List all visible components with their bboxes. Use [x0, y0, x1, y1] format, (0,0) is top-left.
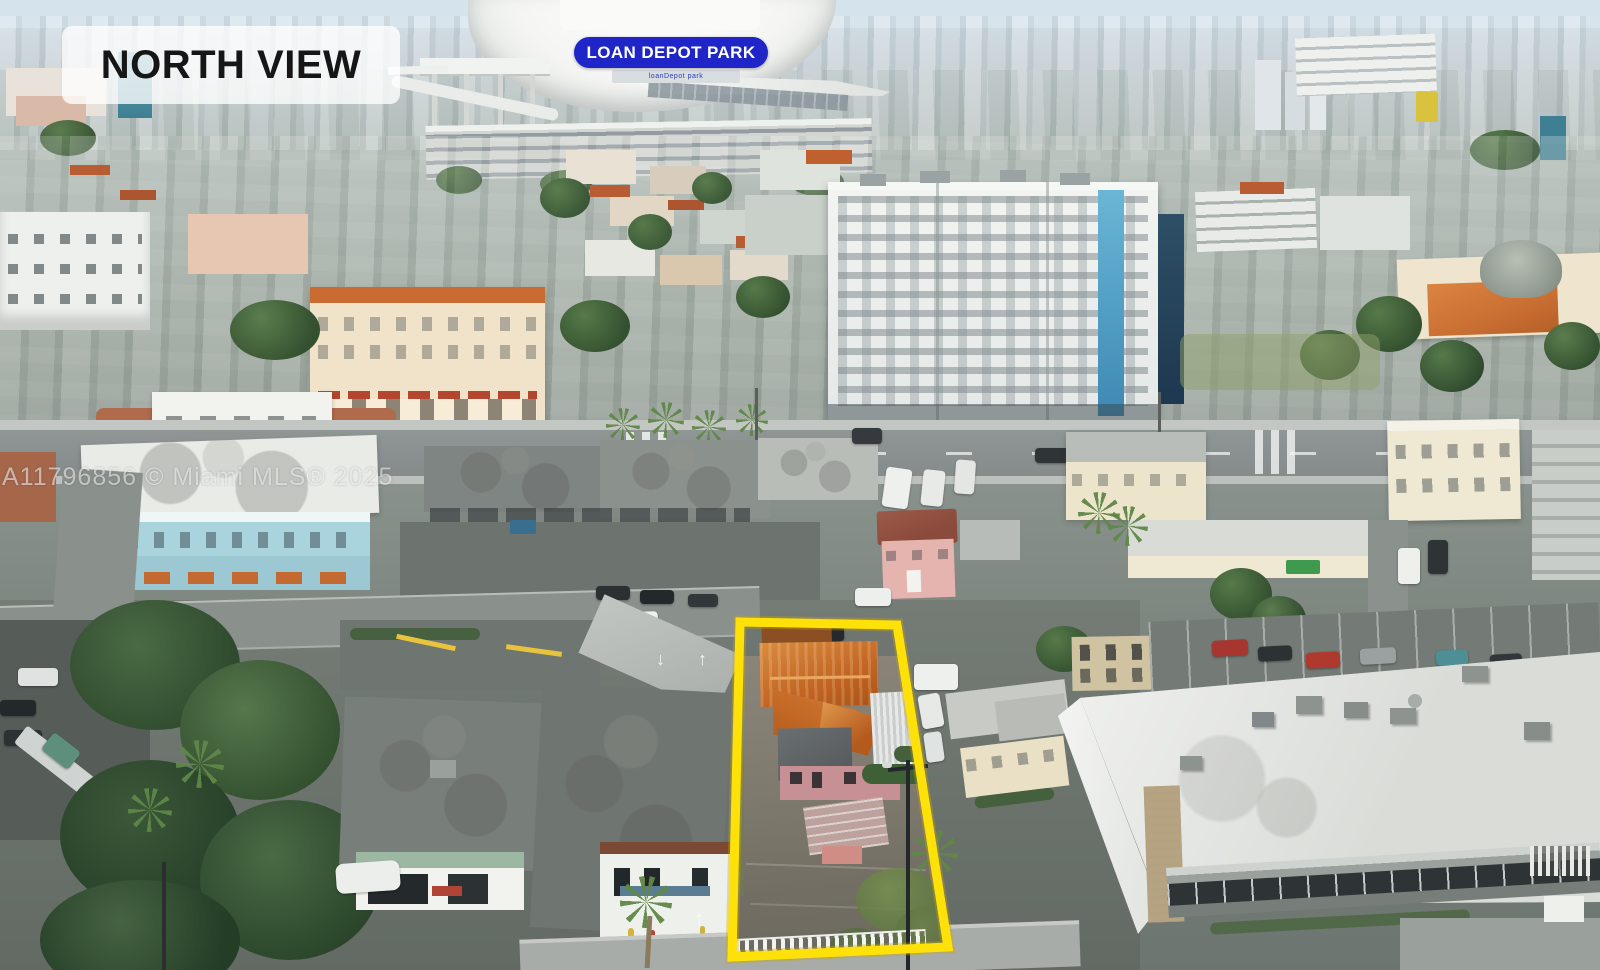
aerial-photo: loanDepot park [0, 0, 1600, 970]
highlight-outline-shadow [732, 622, 948, 957]
mls-watermark: A11796856 © Miami MLS® 2025 [2, 463, 393, 492]
stadium-badge: LOAN DEPOT PARK [574, 37, 768, 68]
highlight-outline [732, 622, 948, 957]
view-badge: NORTH VIEW [62, 26, 400, 104]
stadium-badge-label: LOAN DEPOT PARK [586, 43, 755, 63]
view-badge-label: NORTH VIEW [101, 43, 362, 88]
